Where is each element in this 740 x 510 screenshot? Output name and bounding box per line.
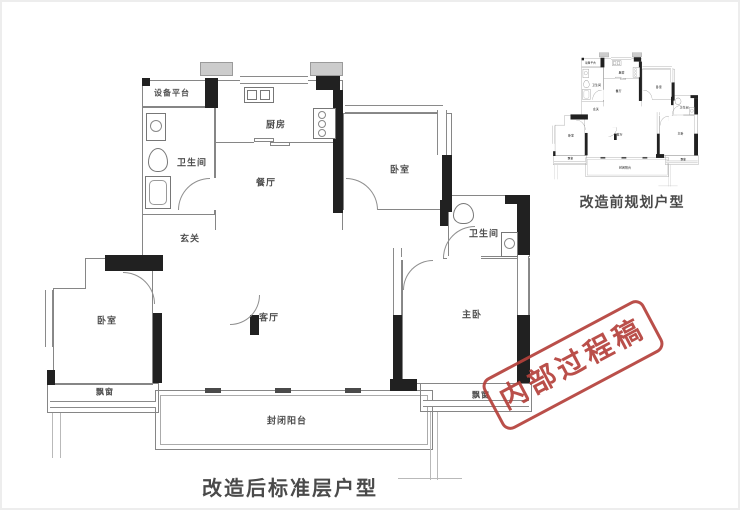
sliding-door-leaf: [270, 142, 290, 146]
room-label-equipment-platform: 设备平台: [154, 88, 190, 99]
bay-window-left-band: [554, 161, 586, 163]
kitchen-divider: [216, 142, 254, 143]
extension-line: [437, 412, 438, 480]
wall-black: [582, 58, 584, 61]
main-floor-plan: 设备平台 卫生间 厨房 餐厅 玄关 卧室 卫生间 客厅 主卧 卧室 飘窗 飘窗 …: [40, 60, 562, 452]
wall-black: [517, 204, 530, 255]
sink-bowl: [150, 120, 162, 132]
wall-black: [390, 379, 417, 391]
room-label-bathroom-right: 卫生间: [469, 227, 499, 240]
kitchen-sink-bowl: [613, 62, 616, 65]
wall-black: [316, 76, 340, 90]
room-label-bedroom-top: 卧室: [390, 163, 410, 176]
wall-black: [153, 313, 162, 383]
door-opening: [401, 257, 443, 260]
stove-burner: [318, 129, 326, 137]
wall-black: [142, 78, 150, 86]
extension-line: [52, 413, 53, 458]
kitchen-sink-bowl: [617, 62, 620, 65]
sink-bowl: [504, 238, 515, 249]
wall-black: [671, 97, 673, 105]
stove-burner: [634, 74, 636, 77]
balcony-post: [643, 157, 648, 159]
sliding-door-leaf: [620, 78, 626, 79]
entry-wall-stub: [250, 315, 259, 335]
room-label-balcony: 封闭阳台: [619, 165, 631, 169]
room-label-bathroom-right: 卫生间: [680, 105, 689, 109]
toilet-fixture: [148, 148, 168, 172]
bathtub-inner: [149, 180, 167, 205]
balcony-post: [345, 388, 361, 393]
master-right-window: [694, 115, 698, 134]
extension-line: [60, 413, 61, 458]
kitchen-sink-bowl: [247, 90, 257, 100]
room-label-living: 客厅: [259, 311, 279, 324]
wall-black: [393, 315, 402, 383]
bedroom-top-window: [345, 105, 443, 113]
ac-platform-block: [200, 62, 233, 76]
room-label-hallway: 玄关: [593, 107, 599, 111]
wall-black: [601, 58, 605, 68]
balcony-post: [275, 388, 291, 393]
balcony-post: [622, 157, 627, 159]
page: 设备平台 卫生间 厨房 餐厅 玄关 卧室 卫生间 客厅 主卧 卧室 飘窗 飘窗 …: [0, 0, 740, 510]
room-label-kitchen: 厨房: [619, 70, 625, 74]
room-label-master-bedroom: 主卧: [678, 131, 684, 135]
room-label-bay-window-right: 飘窗: [681, 157, 686, 161]
room-label-living: 客厅: [617, 132, 623, 136]
room-label-hallway: 玄关: [180, 232, 200, 245]
wall-black: [440, 200, 448, 226]
kitchen-sink-bowl: [260, 90, 270, 100]
room-label-equipment-platform: 设备平台: [585, 61, 596, 65]
stove-burner: [318, 120, 326, 128]
toilet-fixture: [675, 98, 681, 105]
room-label-bedroom-left: 卧室: [97, 314, 117, 327]
balcony-post: [205, 388, 221, 393]
wall-black: [105, 255, 163, 271]
stove-burner: [318, 111, 326, 119]
bedroom-top-side-window: [670, 68, 673, 82]
room-label-kitchen: 厨房: [266, 118, 286, 131]
wall-black: [585, 133, 588, 155]
caption-before-renovation: 改造前规划户型: [552, 192, 712, 212]
bay-window-right-band: [666, 161, 698, 163]
extension-line: [430, 412, 431, 480]
wall-black: [571, 114, 588, 119]
wall-black: [657, 134, 660, 156]
ac-platform-block: [310, 62, 343, 76]
door-opening: [214, 178, 217, 210]
ac-platform-block: [599, 53, 609, 57]
room-label-bay-window-left: 飘窗: [568, 156, 573, 160]
toilet-fixture: [583, 80, 589, 88]
ac-platform-block: [632, 53, 642, 57]
sink-bowl: [690, 109, 693, 113]
bedroom-left-window: [553, 126, 555, 144]
wall-segment: [53, 288, 86, 289]
room-label-bedroom-top: 卧室: [656, 85, 662, 89]
kitchen-window: [240, 76, 308, 84]
room-label-bathroom-left: 卫生间: [177, 156, 207, 169]
balcony-post: [601, 157, 606, 159]
wall-black: [553, 151, 555, 156]
door-opening: [603, 90, 604, 100]
room-label-dining: 餐厅: [616, 89, 622, 93]
master-right-window: [517, 256, 529, 315]
bathtub-inner: [584, 90, 589, 98]
kitchen-dining-outline: [604, 58, 642, 106]
room-label-balcony: 封闭阳台: [267, 414, 307, 427]
wall-black: [205, 78, 218, 108]
kitchen-window: [611, 57, 631, 60]
room-label-bay-window-left: 飘窗: [96, 387, 114, 398]
wall-black: [694, 98, 698, 114]
room-label-bathroom-left: 卫生间: [592, 83, 601, 87]
mini-floor-plan: 设备平台 卫生间 厨房 餐厅 玄关 卧室 卫生间 客厅 主卧 卧室 飘窗 飘窗 …: [551, 52, 708, 177]
bedroom-left-window: [45, 290, 53, 347]
bay-window-left-band: [50, 401, 156, 408]
caption-after-renovation: 改造后标准层户型: [150, 472, 430, 501]
room-label-master-bedroom: 主卧: [462, 308, 482, 321]
room-label-dining: 餐厅: [256, 176, 276, 189]
room-label-bedroom-left: 卧室: [568, 133, 574, 137]
bedroom-top-side-window: [437, 110, 447, 155]
sink-bowl: [584, 71, 588, 75]
wall-black: [47, 370, 55, 385]
wall-black: [694, 134, 698, 156]
bedroom-top-window: [643, 66, 672, 69]
wall-black: [656, 154, 664, 158]
toilet-fixture: [453, 203, 474, 224]
hallway-wall-segment: [142, 215, 143, 258]
wall-black: [505, 195, 530, 204]
kitchen-dining-outline: [215, 80, 343, 230]
